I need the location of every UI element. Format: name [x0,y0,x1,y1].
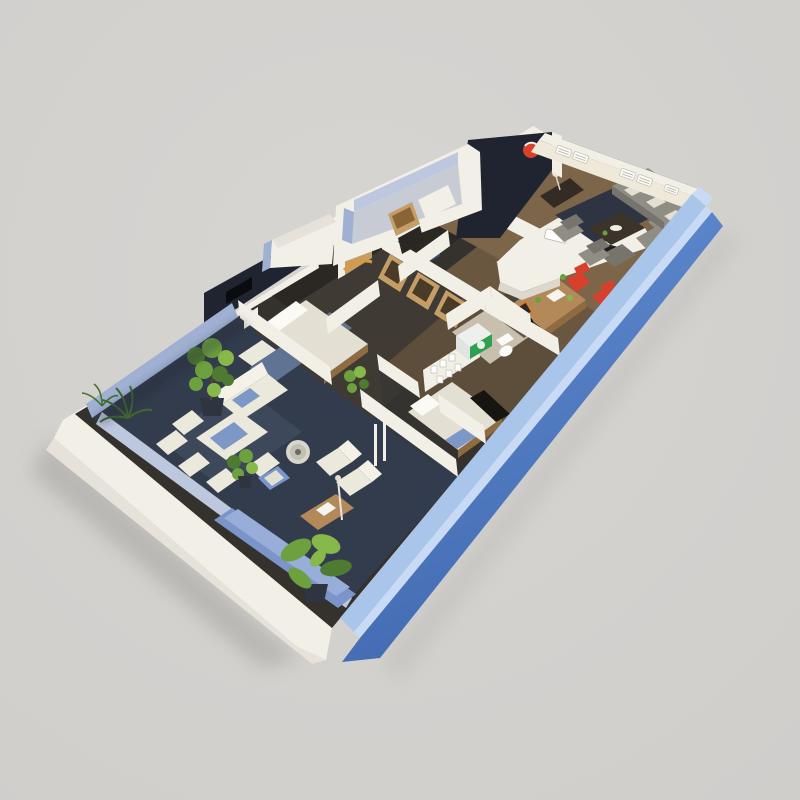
picture-frame [449,354,455,361]
picture-frame [437,376,443,383]
plant-pot [238,476,252,488]
picture-frame [431,366,437,373]
floorplan-render [0,0,800,800]
picture-frame [440,360,446,367]
table-plant [603,231,608,236]
desk-plant [567,295,573,301]
picture-frame [446,370,452,377]
annex-side-wall [342,208,354,244]
door-post [374,424,377,466]
nook-plant [560,274,566,280]
floor-lamp-shade [335,475,341,481]
plant-pot [200,398,224,416]
fire-pit-bowl [295,449,301,455]
door-post [383,419,386,461]
desk-plant [535,297,541,303]
picture-frame [455,364,461,371]
render-canvas [0,0,800,800]
coffee-table-tray [610,225,622,231]
washer-door [477,341,485,349]
